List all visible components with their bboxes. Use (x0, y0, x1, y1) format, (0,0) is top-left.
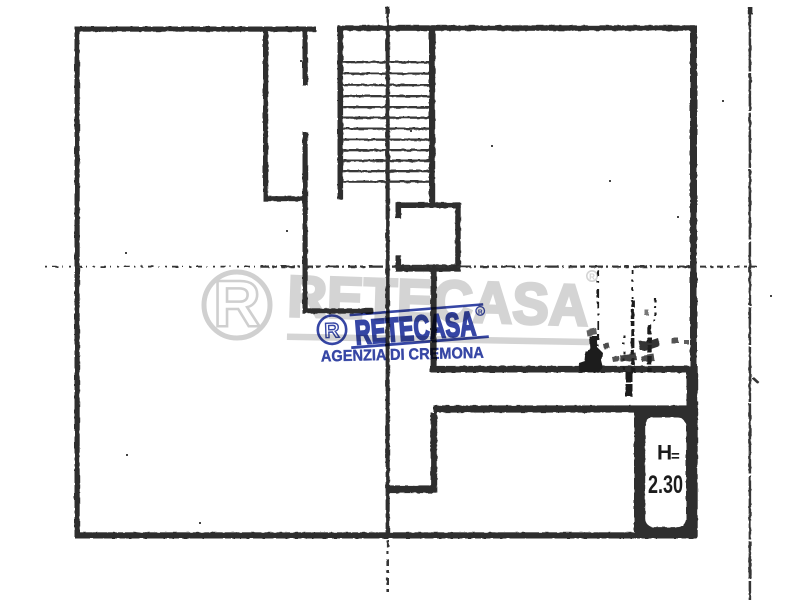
svg-text:R: R (213, 266, 261, 340)
svg-text:R: R (478, 309, 484, 316)
svg-text:H: H (657, 442, 672, 465)
svg-text:R: R (324, 319, 340, 343)
svg-text:2.30: 2.30 (648, 471, 683, 499)
svg-text:AGENZIA DI CREMONA: AGENZIA DI CREMONA (321, 345, 484, 366)
svg-text:=: = (671, 448, 680, 465)
svg-text:R: R (589, 273, 595, 282)
